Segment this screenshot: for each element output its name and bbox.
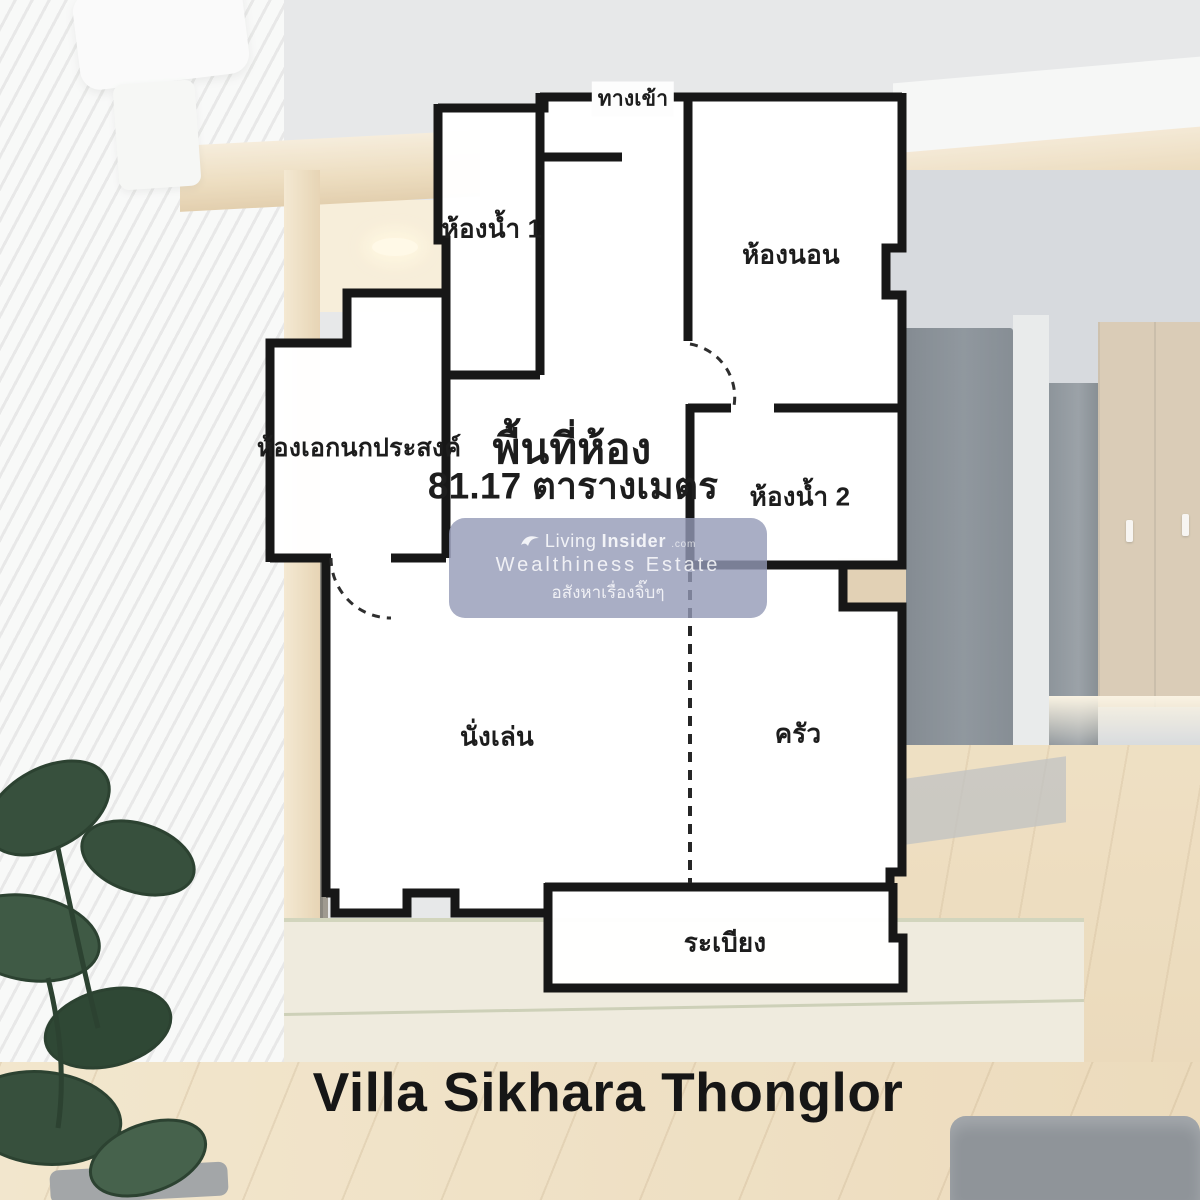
area-detail: 81.17 ตารางเมตร xyxy=(428,457,718,516)
brand-domain: .com xyxy=(671,539,696,550)
brand-living: Living xyxy=(545,531,597,552)
room-label-kitchen: ครัว xyxy=(775,714,822,755)
screenshot-root: ทางเข้า ห้องน้ำ 1 ห้องนอน ห้องเอกนกประสง… xyxy=(0,0,1200,1200)
watermark-brand: LivingInsider.com xyxy=(520,531,696,552)
project-title: Villa Sikhara Thonglor xyxy=(313,1060,904,1124)
room-label-bathroom-2: ห้องน้ำ 2 xyxy=(750,477,851,518)
room-label-bedroom: ห้องนอน xyxy=(742,235,840,276)
room-label-balcony: ระเบียง xyxy=(684,923,766,964)
room-label-entrance: ทางเข้า xyxy=(592,82,674,117)
living-insider-bird-icon xyxy=(520,533,540,549)
watermark-badge: LivingInsider.com Wealthiness Estate อสั… xyxy=(449,518,767,618)
watermark-tagline: อสังหาเรื่องจิ๊บๆ xyxy=(552,579,665,606)
brand-insider: Insider xyxy=(602,531,667,552)
watermark-company: Wealthiness Estate xyxy=(496,554,721,577)
room-label-living: นั่งเล่น xyxy=(460,717,534,758)
room-label-bathroom-1: ห้องน้ำ 1 xyxy=(442,209,543,250)
